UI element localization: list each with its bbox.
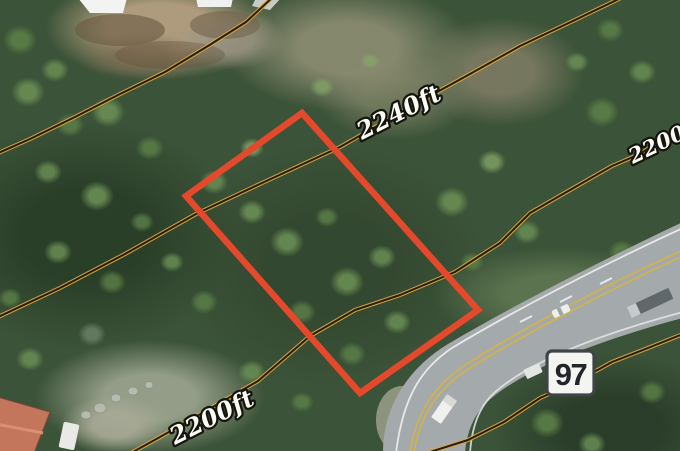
boulders [81,382,153,420]
trailer-bottom-left [58,422,79,451]
dirt-shadows [75,11,260,69]
parcel-boundary[interactable] [186,113,478,393]
highway-97-marker[interactable]: 97 [547,351,594,395]
map-feature-overlay: 2240ft 2200ft 2200ft 97 [0,0,680,451]
contour-label-2200ft-lower: 2200ft [164,383,259,451]
contour-label-2240ft: 2240ft [351,78,446,146]
map-canvas[interactable]: 2240ft 2200ft 2200ft 97 [0,0,680,451]
building-roof-topleft-2 [196,0,233,7]
highway-shield-number: 97 [555,357,587,392]
contour-line-2240ft [0,0,625,318]
contour-label-2200ft-right: 2200ft [623,111,680,169]
building-red-roof [0,396,50,451]
building-roof-topleft-1 [78,0,127,13]
